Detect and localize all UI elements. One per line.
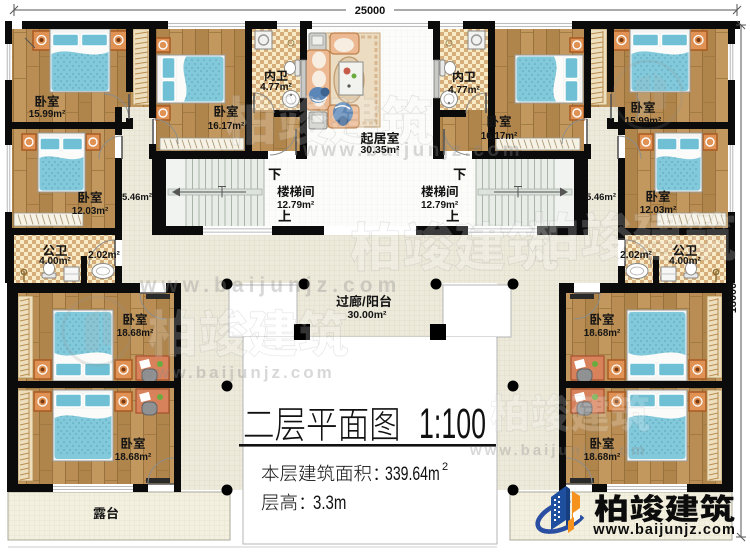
svg-text:18.68m²: 18.68m² [115, 452, 152, 463]
svg-text:18.68m²: 18.68m² [584, 328, 621, 339]
svg-text:2: 2 [442, 461, 448, 473]
svg-text:1:100: 1:100 [419, 400, 486, 448]
svg-text:/: / [362, 294, 366, 309]
svg-text:18.68m²: 18.68m² [584, 452, 621, 463]
svg-text:30.35m²: 30.35m² [360, 144, 400, 156]
svg-text:12.79m²: 12.79m² [277, 200, 315, 211]
svg-text:www.baijunjz.com: www.baijunjz.com [592, 522, 736, 538]
svg-text:15.99m²: 15.99m² [29, 109, 66, 120]
svg-text:4.77m²: 4.77m² [448, 85, 480, 96]
svg-text:4.77m²: 4.77m² [260, 82, 292, 93]
svg-text:www.baijunjz.com: www.baijunjz.com [139, 363, 335, 382]
svg-text:www.baijunjz.com: www.baijunjz.com [302, 140, 523, 161]
svg-text:5.46m²: 5.46m² [122, 192, 152, 203]
svg-text:30.00m²: 30.00m² [347, 309, 387, 321]
svg-text:4.00m²: 4.00m² [669, 256, 701, 267]
svg-text:2.02m²: 2.02m² [88, 250, 120, 261]
svg-text:12.03m²: 12.03m² [640, 205, 677, 216]
svg-text:16.17m²: 16.17m² [481, 131, 518, 142]
svg-text:2.02m²: 2.02m² [620, 250, 652, 261]
svg-text:3.3m: 3.3m [313, 492, 346, 513]
svg-text:18000: 18000 [727, 283, 739, 314]
svg-text:18.68m²: 18.68m² [117, 328, 154, 339]
svg-text:339.64m: 339.64m [385, 463, 440, 485]
svg-text:12.03m²: 12.03m² [72, 206, 109, 217]
svg-text:5.46m²: 5.46m² [586, 192, 616, 203]
svg-text:25000: 25000 [355, 5, 386, 17]
svg-text:15.99m²: 15.99m² [625, 116, 662, 127]
svg-text:4.00m²: 4.00m² [39, 256, 71, 267]
svg-text:12.79m²: 12.79m² [421, 200, 459, 211]
svg-text:16.17m²: 16.17m² [208, 121, 245, 132]
